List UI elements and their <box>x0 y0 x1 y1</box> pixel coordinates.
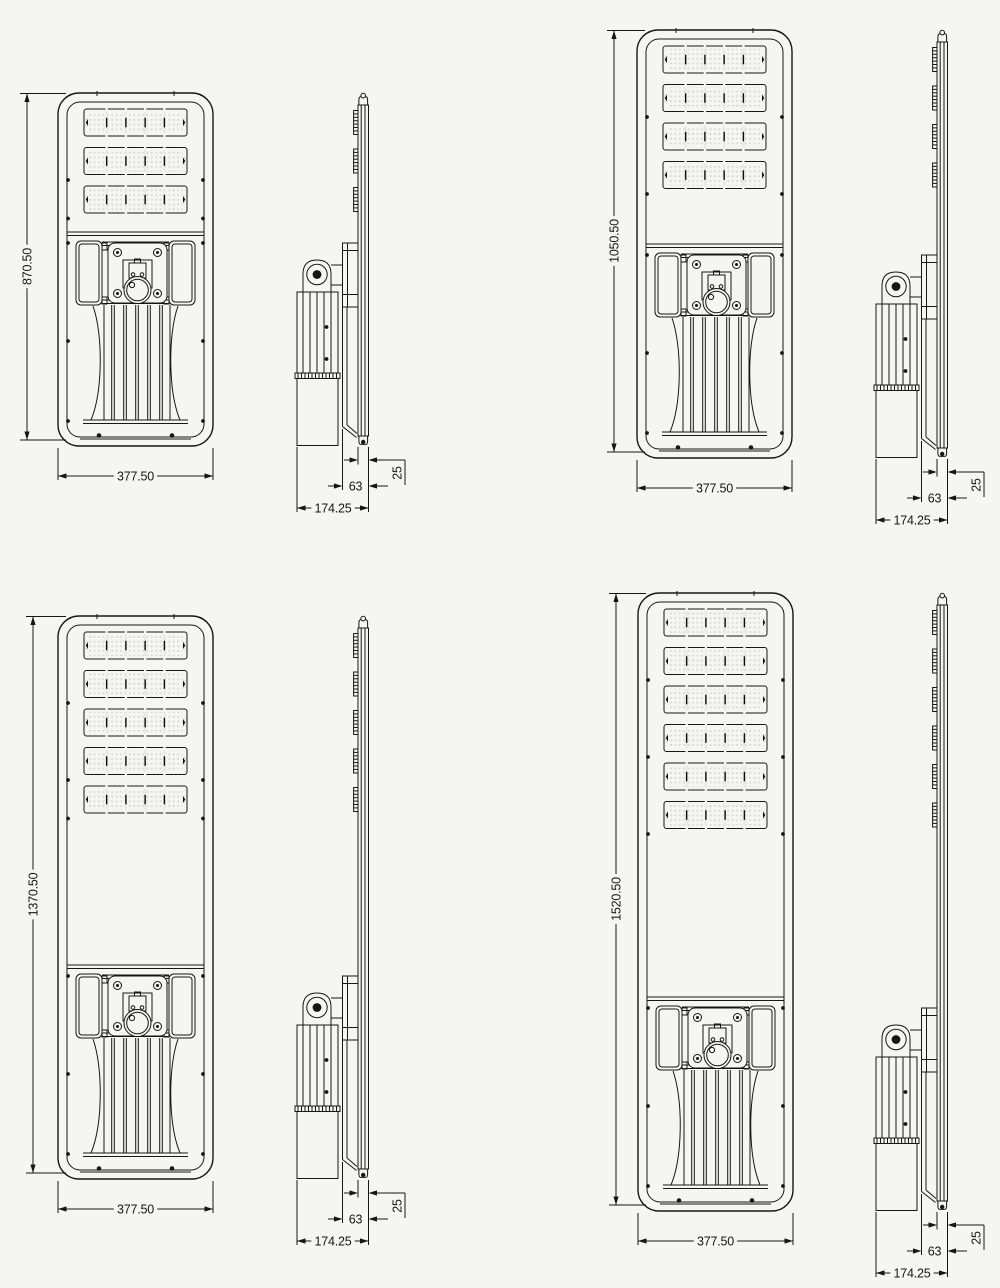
mount-notch <box>685 762 687 764</box>
mount-notch <box>724 723 726 725</box>
mount-notch <box>724 674 726 676</box>
led-module <box>669 727 686 748</box>
panel-slab <box>358 105 369 436</box>
heatsink-fins <box>933 765 937 789</box>
frame-screw <box>646 755 650 759</box>
hinge-column <box>922 1008 938 1072</box>
led-panel-row <box>664 762 767 791</box>
mount-notch <box>743 674 745 676</box>
led-module <box>108 150 125 171</box>
led-module <box>668 87 685 108</box>
arrowhead <box>24 432 29 441</box>
mount-notch <box>163 212 165 214</box>
column-foot-slant <box>922 439 936 450</box>
module-gap-tab <box>743 170 744 180</box>
mount-notch <box>704 111 706 113</box>
led-panel-row <box>84 108 187 137</box>
led-module <box>688 804 705 825</box>
frame-screw <box>201 1072 205 1076</box>
led-panel-row <box>84 669 187 698</box>
pole-entry-outer <box>124 1010 151 1037</box>
led-module <box>89 112 106 133</box>
frame-screw <box>645 253 649 257</box>
corner-tab <box>681 255 686 262</box>
mount-notch <box>724 685 726 687</box>
mount-notch <box>684 122 686 124</box>
led-module <box>707 727 724 748</box>
mount-notch <box>105 812 107 814</box>
mount-notch <box>125 631 127 633</box>
mount-notch <box>724 635 726 637</box>
led-panel-row <box>663 122 766 151</box>
width-dimension: 377.50 <box>58 1181 213 1216</box>
module-gap-tab <box>125 718 126 728</box>
arrowhead <box>637 485 646 490</box>
mount-notch <box>163 812 165 814</box>
heatsink-fins <box>354 672 358 696</box>
led-module <box>108 673 125 694</box>
led-module <box>146 789 163 810</box>
module-gap-tab <box>144 718 145 728</box>
led-module <box>746 650 763 671</box>
frame-screw <box>201 1152 205 1156</box>
module-gap-tab <box>724 810 725 820</box>
side-pad <box>748 253 774 317</box>
led-module <box>89 635 106 656</box>
led-module <box>725 87 742 108</box>
module-gap-tab <box>685 55 686 65</box>
mount-notch <box>742 83 744 85</box>
led-panel-row <box>84 146 187 175</box>
mount-notch <box>685 800 687 802</box>
arrowhead <box>369 1216 378 1221</box>
module-gap-tab <box>164 679 165 689</box>
mount-notch <box>742 111 744 113</box>
corner-tab <box>102 976 107 983</box>
mount-notch <box>144 785 146 787</box>
led-module <box>89 189 106 210</box>
led-module <box>726 727 743 748</box>
panel-slab <box>937 42 948 448</box>
mount-notch <box>685 608 687 610</box>
height-dimension-label: 870.50 <box>20 248 34 285</box>
module-gap-tab <box>144 795 145 805</box>
mounting-bracket-side <box>874 1008 937 1211</box>
led-module <box>707 689 724 710</box>
mount-notch <box>724 608 726 610</box>
flare-curve <box>751 1071 760 1185</box>
module-gap-tab <box>705 733 706 743</box>
mount-notch <box>685 712 687 714</box>
flare-curve <box>91 1039 100 1153</box>
mount-notch <box>743 751 745 753</box>
mount-notch <box>163 146 165 148</box>
mount-notch <box>144 631 146 633</box>
mount-notch <box>705 751 707 753</box>
led-module <box>706 164 723 185</box>
width-dimension: 377.50 <box>58 448 213 483</box>
skirt-screw <box>170 1166 175 1171</box>
heatsink-fins <box>354 788 358 812</box>
module-gap-tab <box>125 641 126 651</box>
led-module <box>89 750 106 771</box>
led-module <box>89 789 106 810</box>
width-dimension-label: 377.50 <box>697 1234 734 1248</box>
hinge-column <box>922 255 938 319</box>
side-pad <box>169 241 195 305</box>
module-gap-tab <box>743 93 744 103</box>
arrowhead <box>948 469 957 474</box>
module-gap-tab <box>744 695 745 705</box>
module-gap-tab <box>106 118 107 128</box>
led-module <box>726 689 743 710</box>
arrowhead <box>334 483 343 488</box>
mount-notch <box>743 723 745 725</box>
mount-notch <box>163 108 165 110</box>
led-panel-row <box>84 746 187 775</box>
heatsink-fins <box>933 163 937 187</box>
thickness-dimension-label: 25 <box>390 466 404 480</box>
mount-notch <box>105 697 107 699</box>
led-module <box>146 635 163 656</box>
mount-notch <box>144 185 146 187</box>
plate-bolt-center <box>116 1025 119 1028</box>
module-gap-tab <box>144 756 145 766</box>
led-panel-row <box>84 708 187 737</box>
mount-notch <box>144 735 146 737</box>
heatsink-fins <box>933 803 937 827</box>
module-gap-tab <box>704 132 705 142</box>
arrowhead <box>611 31 616 40</box>
column-foot-slant <box>347 425 357 434</box>
mounting-bracket-front <box>76 974 195 1157</box>
led-module <box>127 712 144 733</box>
arrowhead <box>939 517 948 522</box>
module-gap-tab <box>723 170 724 180</box>
led-module <box>89 712 106 733</box>
frame-screw <box>781 832 785 836</box>
clamp-bolt <box>325 1058 329 1062</box>
frame-screw <box>645 115 649 119</box>
arrowhead <box>350 1190 359 1195</box>
plate-bolt-center <box>116 292 119 295</box>
clamp-bolt <box>325 1090 329 1094</box>
mount-notch <box>704 160 706 162</box>
plate-bolt-center <box>696 1057 699 1060</box>
front-view <box>58 91 213 446</box>
arrowhead <box>613 594 618 603</box>
mount-notch <box>163 135 165 137</box>
led-panel-row <box>664 723 767 752</box>
led-module <box>688 766 705 787</box>
led-module <box>127 112 144 133</box>
depth-dimension-label: 174.25 <box>893 1266 930 1280</box>
clamp-bolt <box>904 1122 908 1126</box>
led-module <box>688 689 705 710</box>
led-module <box>166 789 183 810</box>
heatsink-fins <box>354 634 358 658</box>
led-module <box>89 150 106 171</box>
frame-screw <box>780 253 784 257</box>
led-module <box>669 804 686 825</box>
module-gap-tab <box>744 618 745 628</box>
frame-screw <box>781 1104 785 1108</box>
skirt-screw <box>676 445 681 450</box>
led-module <box>707 612 724 633</box>
mount-notch <box>704 122 706 124</box>
arrowhead <box>369 483 378 488</box>
module-gap-tab <box>125 795 126 805</box>
mount-notch <box>163 774 165 776</box>
mount-notch <box>685 685 687 687</box>
module-gap-tab <box>705 618 706 628</box>
clamp-bolt <box>325 325 329 329</box>
module-gap-tab <box>144 641 145 651</box>
frame-screw <box>781 755 785 759</box>
mount-notch <box>743 762 745 764</box>
mount-notch <box>742 122 744 124</box>
mount-notch <box>163 746 165 748</box>
unit-870-drawing: 870.50377.502563174.25 <box>20 91 405 515</box>
module-gap-tab <box>704 93 705 103</box>
led-panel-row <box>664 800 767 829</box>
mount-notch <box>742 149 744 151</box>
mount-notch <box>724 828 726 830</box>
frame-screw <box>66 178 70 182</box>
arrowhead <box>939 1270 948 1275</box>
plate-bolt-center <box>116 984 119 987</box>
module-gap-tab <box>106 641 107 651</box>
mount-notch <box>105 146 107 148</box>
flare-curve <box>670 318 679 432</box>
pole-entry-outer <box>124 277 151 304</box>
frame-screw <box>646 832 650 836</box>
heatsink-fins <box>933 649 937 673</box>
side-view <box>295 616 369 1178</box>
mount-notch <box>704 45 706 47</box>
side-view <box>874 593 948 1210</box>
frame-screw <box>780 192 784 196</box>
skirt-screw <box>749 445 754 450</box>
mount-notch <box>105 108 107 110</box>
heatsink-fins <box>354 149 358 173</box>
skirt-screw <box>750 1198 755 1203</box>
mount-notch <box>705 674 707 676</box>
flare-curve <box>750 318 759 432</box>
frame-screw <box>645 351 649 355</box>
led-module <box>127 789 144 810</box>
frame-screw <box>66 817 70 821</box>
pivot-pin <box>313 270 322 279</box>
mount-notch <box>684 160 686 162</box>
side-pad <box>76 974 102 1038</box>
mount-notch <box>144 174 146 176</box>
mount-notch <box>742 72 744 74</box>
led-panel-row <box>84 185 187 214</box>
led-module <box>127 189 144 210</box>
mount-notch <box>144 108 146 110</box>
mount-notch <box>144 697 146 699</box>
mount-notch <box>125 146 127 148</box>
led-module <box>166 673 183 694</box>
mount-notch <box>743 685 745 687</box>
plate-bolt-center <box>736 1057 739 1060</box>
led-module <box>707 766 724 787</box>
width-dimension-label: 377.50 <box>696 481 733 495</box>
mount-notch <box>125 669 127 671</box>
led-module <box>706 87 723 108</box>
frame-screw <box>66 1152 70 1156</box>
mount-notch <box>105 212 107 214</box>
module-gap-tab <box>724 656 725 666</box>
pole-sleeve <box>297 379 338 446</box>
frame-screw <box>201 178 205 182</box>
mount-notch <box>125 785 127 787</box>
width-dimension: 377.50 <box>638 1213 793 1248</box>
mount-notch <box>105 746 107 748</box>
unit-1520-drawing: 1520.50377.502563174.25 <box>609 591 984 1280</box>
mount-notch <box>724 751 726 753</box>
led-module <box>726 766 743 787</box>
pivot-pin <box>892 1035 901 1044</box>
width-dimension: 377.50 <box>637 460 792 495</box>
mount-notch <box>705 712 707 714</box>
frame-screw <box>646 1104 650 1108</box>
pivot-pin <box>892 282 901 291</box>
mount-notch <box>144 708 146 710</box>
bottom-cap-knob <box>361 1173 365 1177</box>
mount-notch <box>705 800 707 802</box>
mount-notch <box>105 669 107 671</box>
skirt-screw <box>97 433 102 438</box>
mount-notch <box>723 72 725 74</box>
arrowhead <box>350 457 359 462</box>
plate-bolt-center <box>156 251 159 254</box>
plate-bolt-center <box>696 1016 699 1019</box>
frame-screw <box>781 1184 785 1188</box>
width-dimension-label: 377.50 <box>117 1202 154 1216</box>
mount-notch <box>685 635 687 637</box>
arrowhead <box>876 1270 885 1275</box>
led-module <box>687 164 704 185</box>
mount-notch <box>705 635 707 637</box>
mount-notch <box>685 789 687 791</box>
led-panel-row <box>663 83 766 112</box>
mount-notch <box>705 646 707 648</box>
mount-notch <box>743 608 745 610</box>
module-gap-tab <box>106 679 107 689</box>
heatsink-fins <box>354 749 358 773</box>
led-module <box>725 164 742 185</box>
module-gap-tab <box>125 195 126 205</box>
depth-dimension-label: 174.25 <box>314 1234 351 1248</box>
mount-notch <box>724 789 726 791</box>
frame-screw <box>66 339 70 343</box>
width-dimension-label: 377.50 <box>117 469 154 483</box>
module-gap-tab <box>106 718 107 728</box>
bottom-cap-knob <box>940 452 944 456</box>
mount-notch <box>105 658 107 660</box>
mounting-bracket-side <box>295 243 358 446</box>
mount-notch <box>685 723 687 725</box>
led-module <box>707 804 724 825</box>
panel-slab <box>358 628 369 1169</box>
offset-dimension-label: 63 <box>928 1244 942 1258</box>
led-module <box>706 49 723 70</box>
mount-notch <box>105 774 107 776</box>
led-module <box>745 126 762 147</box>
plate-bolt-center <box>735 304 738 307</box>
led-panel-row <box>663 45 766 74</box>
arrowhead <box>929 1222 938 1227</box>
led-panel-row <box>664 608 767 637</box>
module-gap-tab <box>704 170 705 180</box>
led-panel-array <box>84 631 187 814</box>
module-gap-tab <box>744 656 745 666</box>
led-module <box>688 650 705 671</box>
led-module <box>166 712 183 733</box>
side-pad <box>76 241 102 305</box>
heatsink-fins <box>933 48 937 72</box>
side-pad <box>656 1006 682 1070</box>
mount-notch <box>724 800 726 802</box>
led-module <box>146 150 163 171</box>
height-dimension-label: 1370.50 <box>26 872 40 916</box>
offset-dimension-label: 63 <box>349 479 363 493</box>
frame-screw <box>66 974 70 978</box>
height-dimension-label: 1050.50 <box>607 219 621 263</box>
led-module <box>668 126 685 147</box>
side-view <box>295 93 369 445</box>
led-module <box>688 727 705 748</box>
module-gap-tab <box>144 156 145 166</box>
mount-notch <box>743 828 745 830</box>
arrowhead <box>24 94 29 103</box>
arrowhead <box>360 505 369 510</box>
module-gap-tab <box>685 93 686 103</box>
mount-notch <box>704 72 706 74</box>
module-gap-tab <box>125 118 126 128</box>
pole-entry-outer <box>704 1042 731 1069</box>
led-module <box>746 766 763 787</box>
column-foot-slant <box>343 1160 357 1171</box>
height-dimension-label: 1520.50 <box>609 877 623 921</box>
mount-notch <box>105 785 107 787</box>
frame-screw <box>646 678 650 682</box>
mount-notch <box>163 185 165 187</box>
module-gap-tab <box>164 641 165 651</box>
mount-notch <box>125 697 127 699</box>
led-panel-array <box>664 608 767 830</box>
led-module <box>726 612 743 633</box>
module-gap-tab <box>686 618 687 628</box>
module-gap-tab <box>164 118 165 128</box>
depth-dimension: 174.25 <box>876 1266 948 1280</box>
arrowhead <box>876 517 885 522</box>
mount-notch <box>723 188 725 190</box>
mount-notch <box>163 174 165 176</box>
mount-notch <box>125 658 127 660</box>
module-gap-tab <box>705 772 706 782</box>
mount-notch <box>125 735 127 737</box>
mount-notch <box>705 789 707 791</box>
mount-notch <box>704 188 706 190</box>
bottom-cap-knob <box>361 440 365 444</box>
heatsink-fins <box>933 86 937 110</box>
mount-notch <box>684 45 686 47</box>
led-module <box>746 612 763 633</box>
mount-notch <box>742 45 744 47</box>
